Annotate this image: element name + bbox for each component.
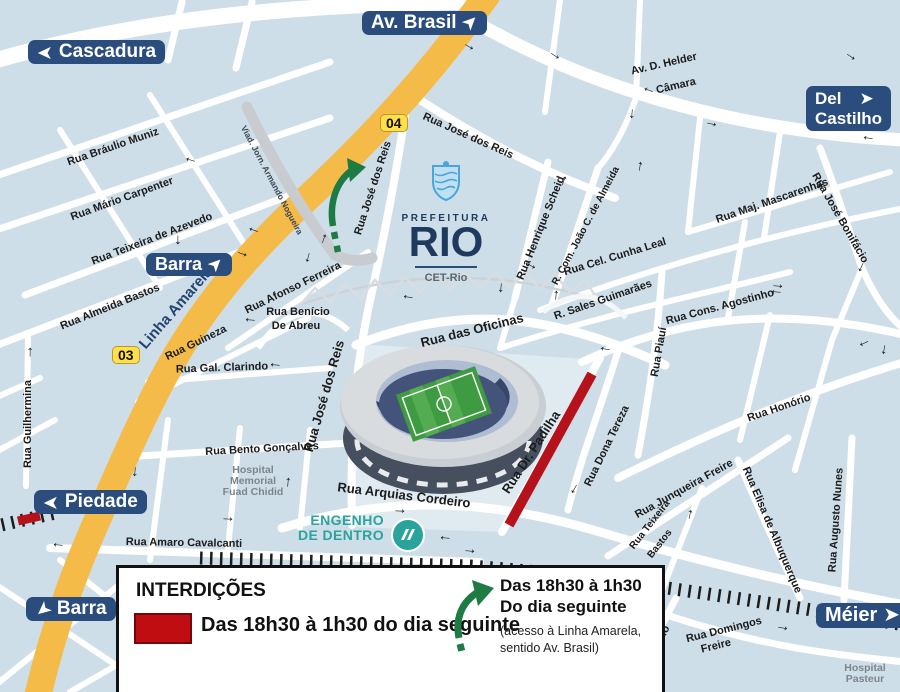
direction-arrow-icon: → (678, 505, 698, 523)
street-label: Rua Benício (266, 306, 330, 318)
street-label: Rua Guilhermina (22, 380, 34, 468)
sign-cascadura: ➤ Cascadura (28, 40, 165, 64)
right-arrow-icon: ➤ (883, 604, 900, 627)
left-arrow-icon: ➤ (43, 491, 59, 513)
direction-arrow-icon: → (50, 538, 66, 556)
rio-crest-icon (423, 160, 469, 206)
direction-arrow-icon: → (462, 540, 478, 558)
sign-label: Piedade (65, 491, 138, 513)
direction-arrow-icon: → (596, 341, 614, 360)
direction-arrow-icon: → (876, 341, 895, 359)
legend-green-line2: Do dia seguinte (500, 596, 642, 617)
northeast-arrow-icon: ➤ (203, 252, 228, 277)
left-arrow-icon: ➤ (37, 41, 53, 63)
legend-green-note: (acesso à Linha Amarela, sentido Av. Bra… (500, 623, 641, 657)
sign-label: Barra (155, 254, 202, 275)
direction-arrow-icon: → (267, 358, 283, 376)
legend-note-line1: (acesso à Linha Amarela, (500, 623, 641, 640)
direction-arrow-icon: → (20, 345, 37, 360)
sign-label: Castilho (815, 109, 882, 128)
direction-arrow-icon: → (628, 157, 647, 175)
southwest-arrow-icon: ➤ (30, 595, 56, 622)
direction-arrow-icon: → (625, 106, 643, 122)
train-station-icon (391, 518, 425, 552)
sign-meier: Méier ➤ (816, 603, 900, 628)
direction-arrow-icon: → (220, 508, 236, 526)
linha-amarela-shield-03: 03 (112, 346, 140, 364)
station-name-line1: ENGENHO (282, 513, 384, 528)
northeast-arrow-icon: ➤ (457, 10, 484, 37)
hospital-label: Pasteur (846, 673, 885, 685)
hospital-label: Fuad Chidid (223, 486, 284, 498)
direction-arrow-icon: → (437, 531, 453, 549)
sign-label: Méier (825, 604, 877, 627)
sign-del-castilho: Del ➤ Castilho (806, 86, 891, 131)
street-label: Rua Amaro Cavalcanti (126, 536, 243, 550)
legend-green-line1: Das 18h30 à 1h30 (500, 575, 642, 596)
sign-label: Cascadura (59, 41, 156, 63)
legend: INTERDIÇÕES Das 18h30 à 1h30 do dia segu… (116, 565, 665, 692)
logo-divider (415, 266, 477, 268)
legend-note-line2: sentido Av. Brasil) (500, 640, 641, 657)
street-label: De Abreu (272, 320, 321, 332)
sign-av-brasil: Av. Brasil ➤ (362, 11, 487, 35)
sign-label: Av. Brasil (371, 12, 457, 34)
sign-label: Del (815, 89, 841, 109)
legend-green-arrow-icon (444, 576, 496, 654)
direction-arrow-icon: → (494, 280, 512, 296)
right-arrow-icon: ➤ (859, 89, 873, 109)
prefeitura-rio-logo: PREFEITURA RIO CET-Rio (398, 160, 494, 284)
station-name-line2: DE DENTRO (282, 528, 384, 543)
legend-title: INTERDIÇÕES (136, 580, 266, 602)
logo-rio-text: RIO (398, 224, 494, 261)
direction-arrow-icon: → (859, 131, 876, 150)
direction-arrow-icon: → (128, 464, 146, 480)
traffic-closure-map: Rua Bráulio Muniz Rua Mário Carpenter Ru… (0, 0, 900, 692)
station-name-label: ENGENHO DE DENTRO (282, 513, 384, 544)
direction-arrow-icon: → (399, 290, 416, 309)
closure-color-swatch (134, 613, 192, 644)
logo-cet-rio-text: CET-Rio (398, 272, 494, 284)
sign-barra-mid: Barra ➤ (146, 253, 232, 276)
sign-piedade: ➤ Piedade (34, 490, 147, 514)
direction-arrow-icon: → (545, 287, 563, 303)
linha-amarela-shield-04: 04 (380, 114, 408, 132)
sign-barra-bottom: ➤ Barra (26, 597, 116, 621)
direction-arrow-icon: → (774, 616, 792, 635)
sign-label: Barra (57, 598, 107, 620)
legend-green-label: Das 18h30 à 1h30 Do dia seguinte (500, 575, 642, 618)
